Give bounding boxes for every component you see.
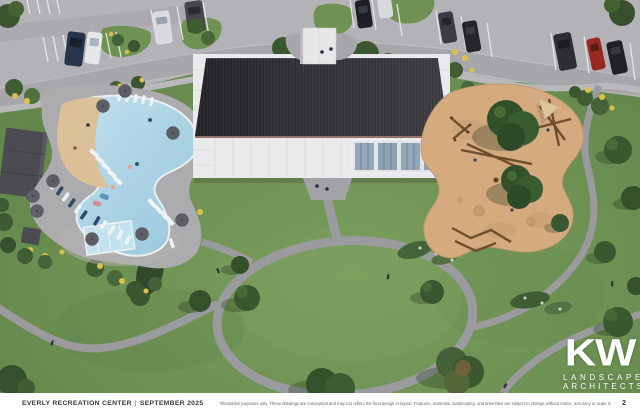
site-rendering-svg	[0, 0, 640, 393]
kw-monogram-icon: KW	[554, 334, 640, 372]
presentation-page: KW LANDSCAPE ARCHITECTS EVERLY RECREATIO…	[0, 0, 640, 414]
project-title: EVERLY RECREATION CENTER	[22, 400, 132, 407]
page-number: 2	[622, 400, 626, 407]
playground	[421, 84, 583, 258]
footer: EVERLY RECREATION CENTER|SEPTEMBER 2025 …	[0, 393, 640, 414]
title-separator: |	[135, 400, 137, 407]
site-plan-rendering: KW LANDSCAPE ARCHITECTS	[0, 0, 640, 393]
sheet-date: SEPTEMBER 2025	[140, 400, 204, 407]
pool-shed	[21, 227, 42, 246]
logo-architects-text: ARCHITECTS	[563, 383, 639, 391]
logo-landscape-text: LANDSCAPE	[563, 374, 639, 382]
resort-pool	[27, 85, 209, 269]
footer-title: EVERLY RECREATION CENTER|SEPTEMBER 2025	[22, 400, 203, 407]
disclaimer-text: *Illustrative purposes only. These drawi…	[219, 401, 612, 406]
kw-logo: KW LANDSCAPE ARCHITECTS	[561, 334, 639, 391]
